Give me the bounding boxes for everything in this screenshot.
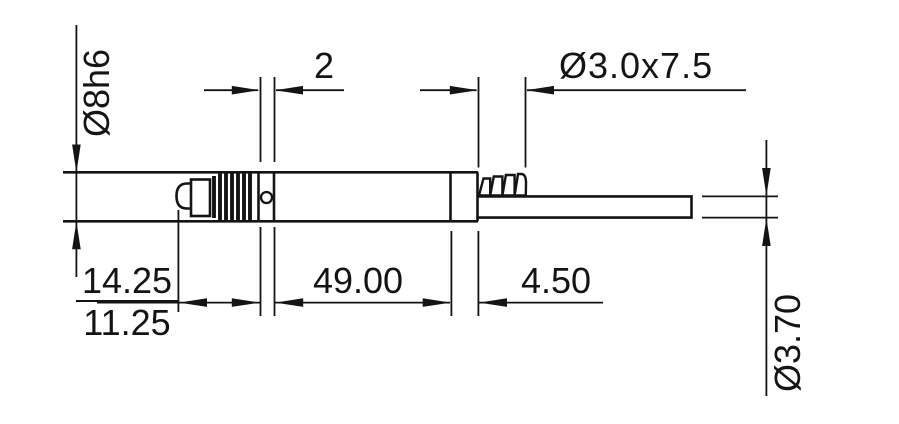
arrowhead-down	[762, 168, 771, 196]
probe-tip-ball	[177, 184, 192, 209]
arrowhead-right	[423, 298, 451, 307]
dim-label-cable-diameter: Ø3.70	[768, 260, 808, 392]
dim-label-tip-stack: 14.25 11.25	[76, 262, 178, 341]
barb-tooth	[502, 175, 514, 195]
arrowhead-down	[72, 145, 81, 173]
barb-tooth	[479, 179, 490, 196]
cable-tube	[478, 196, 692, 217]
dim-label-groove-width: 2	[305, 47, 343, 84]
drawing-linework	[0, 0, 899, 424]
probe-tip-collar	[191, 180, 210, 217]
arrowhead-up	[762, 218, 771, 246]
dim-label-tip-upper: 14.25	[76, 262, 178, 302]
probe-body	[63, 172, 692, 221]
arrowhead-left	[275, 86, 303, 95]
thread-section	[214, 174, 250, 221]
dim-label-tip-lower: 11.25	[76, 302, 178, 341]
arrowhead-right	[232, 86, 260, 95]
arrowhead-up	[72, 221, 81, 249]
arrowhead-left	[479, 298, 507, 307]
arrowhead-left	[275, 298, 303, 307]
reference-hole	[261, 192, 272, 203]
arrowhead-right	[232, 298, 260, 307]
technical-drawing: Ø8h6 2 Ø3.0x7.5 14.25 11.25 49.00 4.50 Ø…	[0, 0, 899, 424]
barb-tooth	[515, 174, 526, 195]
arrowhead-left	[179, 298, 207, 307]
dim-label-fitting-length: 4.50	[506, 262, 606, 299]
barb-tooth	[490, 177, 502, 196]
dim-label-body-length: 49.00	[304, 262, 412, 299]
dim-label-body-diameter: Ø8h6	[76, 25, 118, 137]
dim-label-barb-fitting: Ø3.0x7.5	[559, 47, 749, 84]
arrowhead-left	[526, 86, 554, 95]
barb-fitting	[479, 174, 526, 195]
arrowhead-right	[450, 86, 478, 95]
